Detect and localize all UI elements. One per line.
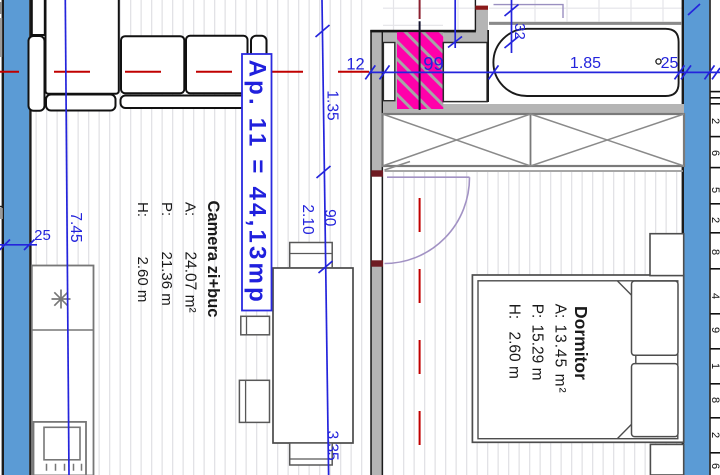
svg-text:Ap. 11 = 44,13mp: Ap. 11 = 44,13mp xyxy=(243,60,270,305)
svg-text:8: 8 xyxy=(709,249,720,255)
svg-text:13.45 m²: 13.45 m² xyxy=(552,325,569,394)
svg-text:25: 25 xyxy=(661,55,679,72)
svg-text:99: 99 xyxy=(423,53,444,74)
svg-text:6: 6 xyxy=(709,150,720,156)
svg-text:A:: A: xyxy=(552,304,569,319)
svg-text:25: 25 xyxy=(34,227,51,244)
svg-text:2: 2 xyxy=(709,217,720,223)
svg-text:21.36 m: 21.36 m xyxy=(158,252,175,306)
svg-text:4: 4 xyxy=(709,293,720,299)
svg-text:15.29 m: 15.29 m xyxy=(529,325,546,381)
svg-text:Dormitor: Dormitor xyxy=(571,306,591,380)
svg-text:3.35: 3.35 xyxy=(324,431,341,461)
svg-text:1: 1 xyxy=(709,363,720,369)
svg-text:H:: H: xyxy=(506,304,523,320)
svg-text:P:: P: xyxy=(529,304,546,319)
svg-text:2.60 m: 2.60 m xyxy=(506,332,523,379)
svg-text:8: 8 xyxy=(709,397,720,403)
svg-text:6: 6 xyxy=(709,463,720,469)
svg-text:2.10: 2.10 xyxy=(299,204,316,235)
svg-text:A:: A: xyxy=(182,202,199,216)
svg-text:90: 90 xyxy=(321,209,338,227)
svg-text:H:: H: xyxy=(134,202,151,217)
svg-text:1.85: 1.85 xyxy=(570,55,601,72)
svg-text:Camera zi+buc: Camera zi+buc xyxy=(204,201,222,318)
svg-text:32: 32 xyxy=(511,23,528,40)
svg-text:P:: P: xyxy=(158,202,175,216)
svg-text:24.07 m²: 24.07 m² xyxy=(182,252,199,313)
svg-text:2: 2 xyxy=(709,118,720,124)
svg-text:5: 5 xyxy=(709,187,720,193)
svg-text:7.45: 7.45 xyxy=(67,212,84,242)
svg-text:12: 12 xyxy=(346,56,364,74)
svg-text:2.60 m: 2.60 m xyxy=(134,257,151,303)
svg-text:9: 9 xyxy=(709,327,720,333)
svg-text:1.35: 1.35 xyxy=(323,90,340,120)
svg-text:2: 2 xyxy=(709,432,720,438)
